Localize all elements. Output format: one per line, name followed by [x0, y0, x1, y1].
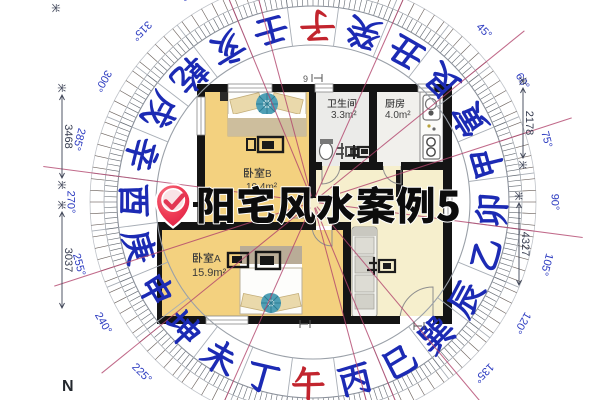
svg-text:270°: 270° — [65, 191, 77, 214]
svg-text:3037: 3037 — [62, 248, 74, 272]
svg-text:A: A — [214, 254, 221, 265]
svg-text:90°: 90° — [549, 194, 561, 211]
svg-text:4.0m²: 4.0m² — [385, 110, 411, 121]
svg-text:N: N — [62, 378, 74, 395]
svg-text:4327: 4327 — [519, 232, 531, 256]
svg-text:15.9m²: 15.9m² — [192, 267, 227, 279]
svg-text:3468: 3468 — [62, 124, 74, 148]
svg-text:2178: 2178 — [523, 111, 535, 135]
svg-text:B: B — [265, 169, 272, 180]
svg-text:9: 9 — [303, 74, 308, 84]
